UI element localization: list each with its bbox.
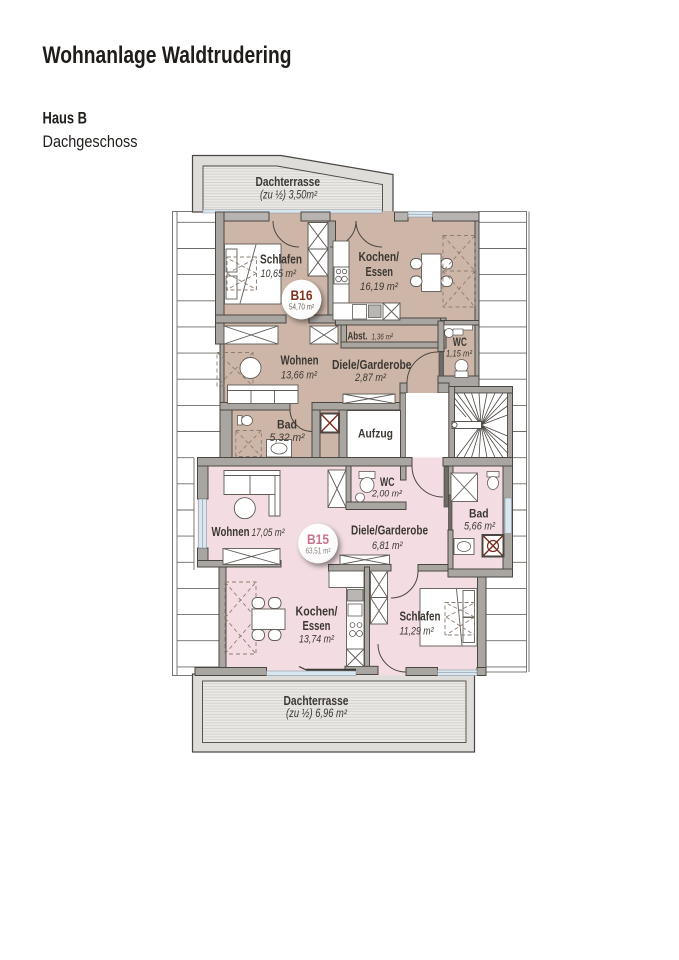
svg-text:WC: WC bbox=[380, 477, 395, 489]
svg-text:13,66 m²: 13,66 m² bbox=[281, 370, 317, 382]
svg-text:Bad: Bad bbox=[277, 418, 297, 432]
svg-text:1,36 m²: 1,36 m² bbox=[372, 332, 394, 342]
svg-text:Kochen/: Kochen/ bbox=[359, 250, 400, 264]
svg-text:Dachterrasse: Dachterrasse bbox=[284, 694, 349, 708]
svg-text:5,66 m²: 5,66 m² bbox=[464, 521, 495, 533]
svg-text:6,81 m²: 6,81 m² bbox=[372, 540, 403, 552]
svg-text:(zu ½) 6,96 m²: (zu ½) 6,96 m² bbox=[286, 708, 348, 720]
svg-text:Diele/Garderobe: Diele/Garderobe bbox=[351, 524, 428, 538]
svg-text:Wohnen: Wohnen bbox=[212, 525, 250, 539]
svg-text:WC: WC bbox=[453, 337, 467, 349]
svg-text:11,29 m²: 11,29 m² bbox=[400, 626, 434, 638]
svg-text:10,65 m²: 10,65 m² bbox=[261, 268, 297, 280]
svg-text:17,05 m²: 17,05 m² bbox=[252, 527, 285, 539]
svg-text:13,74 m²: 13,74 m² bbox=[299, 634, 334, 646]
svg-text:Bad: Bad bbox=[469, 507, 489, 521]
svg-text:16,19 m²: 16,19 m² bbox=[360, 281, 398, 293]
svg-text:Essen: Essen bbox=[303, 619, 331, 633]
svg-text:1,15 m²: 1,15 m² bbox=[446, 349, 473, 359]
svg-text:Kochen/: Kochen/ bbox=[296, 605, 338, 619]
svg-text:Dachterrasse: Dachterrasse bbox=[256, 175, 321, 189]
svg-text:63,51 m²: 63,51 m² bbox=[306, 547, 331, 556]
svg-text:Dachgeschoss: Dachgeschoss bbox=[43, 132, 138, 151]
svg-text:Schlafen: Schlafen bbox=[260, 253, 302, 267]
svg-text:5,32 m²: 5,32 m² bbox=[270, 432, 305, 444]
svg-text:2,87 m²: 2,87 m² bbox=[354, 372, 386, 384]
svg-text:B16: B16 bbox=[291, 287, 313, 303]
svg-text:Wohnanlage Waldtrudering: Wohnanlage Waldtrudering bbox=[43, 42, 292, 69]
svg-text:Aufzug: Aufzug bbox=[358, 429, 393, 441]
svg-text:(zu ½) 3,50m²: (zu ½) 3,50m² bbox=[260, 190, 318, 202]
svg-text:Haus B: Haus B bbox=[43, 109, 88, 128]
svg-text:Abst.: Abst. bbox=[348, 331, 368, 343]
svg-text:2,00 m²: 2,00 m² bbox=[371, 489, 403, 499]
svg-text:B15: B15 bbox=[307, 531, 329, 547]
svg-text:54,70 m²: 54,70 m² bbox=[289, 303, 314, 312]
svg-text:Essen: Essen bbox=[366, 265, 394, 279]
svg-text:Wohnen: Wohnen bbox=[281, 354, 319, 368]
svg-text:Diele/Garderobe: Diele/Garderobe bbox=[332, 358, 412, 372]
svg-text:Schlafen: Schlafen bbox=[400, 610, 441, 624]
